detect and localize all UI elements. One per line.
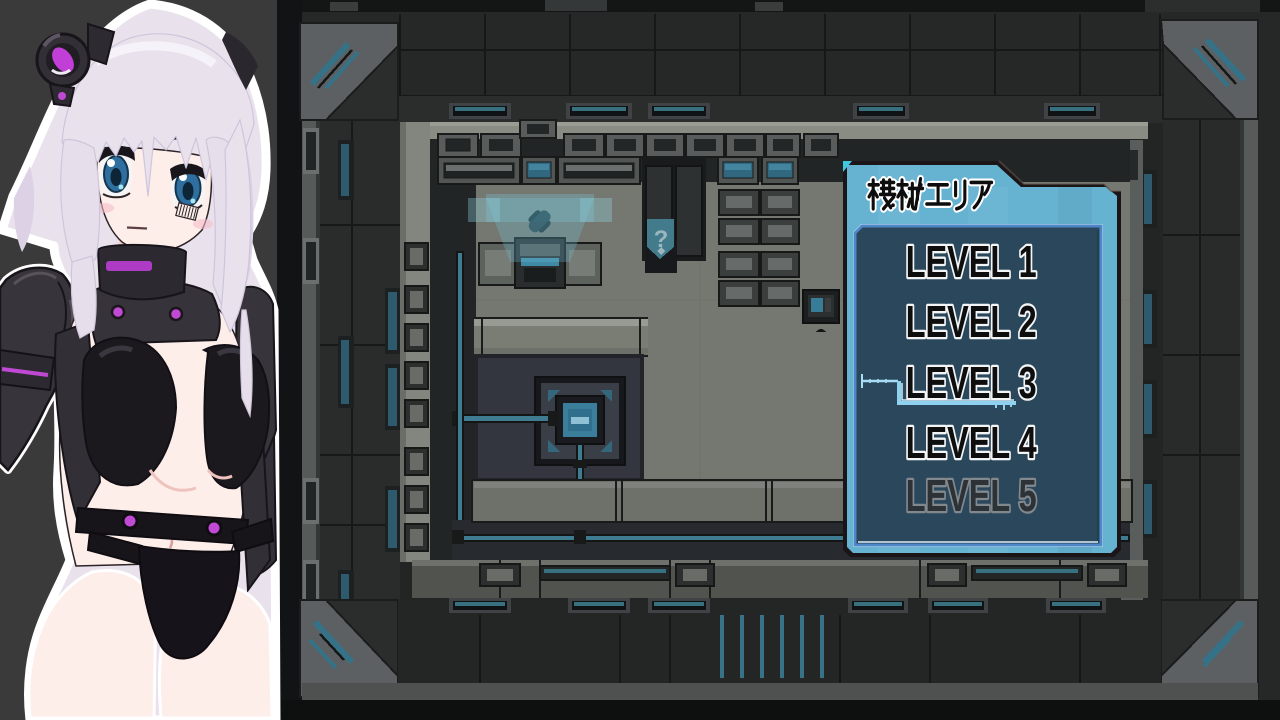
svg-text:LEVEL 4: LEVEL 4	[906, 417, 1037, 468]
svg-text:LEVEL 1: LEVEL 1	[906, 236, 1037, 287]
svg-text:LEVEL 5: LEVEL 5	[906, 470, 1037, 521]
svg-text:LEVEL 3: LEVEL 3	[906, 357, 1037, 408]
svg-text:LEVEL 2: LEVEL 2	[906, 296, 1037, 347]
